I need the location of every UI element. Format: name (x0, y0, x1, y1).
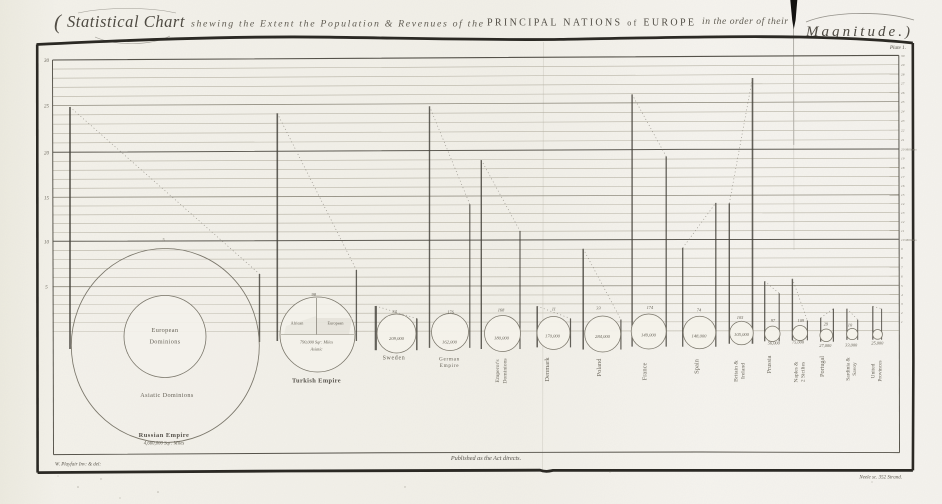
svg-text:Statistical Chart: Statistical Chart (67, 12, 185, 31)
svg-text:Prussia: Prussia (766, 355, 773, 373)
svg-text:3: 3 (901, 302, 903, 306)
svg-text:Sardinia &: Sardinia & (845, 356, 851, 380)
svg-text:21: 21 (901, 138, 905, 142)
svg-text:shewing the Extent the Populat: shewing the Extent the Population & Reve… (191, 19, 484, 30)
svg-text:26: 26 (901, 91, 905, 95)
svg-text:23: 23 (901, 119, 905, 123)
svg-text:168: 168 (498, 308, 505, 313)
svg-text:Savoy: Savoy (852, 362, 858, 376)
svg-text:11: 11 (901, 229, 904, 233)
svg-text:174: 174 (647, 305, 654, 310)
svg-text:15: 15 (901, 193, 905, 197)
svg-text:30: 30 (44, 59, 50, 64)
svg-text:Turkish Empire: Turkish Empire (292, 378, 341, 385)
svg-text:Russian Empire: Russian Empire (139, 432, 190, 439)
svg-text:18: 18 (901, 166, 905, 170)
svg-text:Naples &: Naples & (793, 361, 799, 383)
svg-text:8: 8 (901, 256, 903, 260)
svg-text:5: 5 (901, 284, 903, 288)
svg-text:France: France (642, 363, 649, 381)
svg-text:2 Sicilies: 2 Sicilies (800, 362, 806, 382)
svg-text:9: 9 (901, 247, 903, 251)
svg-text:Dominions: Dominions (149, 339, 180, 346)
svg-text:2: 2 (901, 311, 903, 315)
svg-text:27: 27 (901, 82, 905, 86)
svg-text:24: 24 (901, 110, 905, 114)
svg-text:22: 22 (901, 129, 905, 133)
svg-text:13: 13 (901, 211, 905, 215)
svg-text:105: 105 (737, 315, 744, 320)
svg-text:African: African (291, 321, 305, 326)
svg-text:Portugal: Portugal (819, 356, 826, 377)
svg-text:10: 10 (44, 240, 50, 245)
svg-text:Published as the Act directs.: Published as the Act directs. (450, 455, 521, 462)
svg-text:25: 25 (901, 100, 905, 104)
svg-text:Dominions: Dominions (503, 358, 509, 384)
svg-text:German: German (439, 357, 460, 363)
svg-text:28: 28 (901, 72, 905, 76)
svg-text:176: 176 (447, 310, 454, 315)
svg-text:20: 20 (44, 151, 50, 156)
svg-text:in the order of their: in the order of their (702, 16, 788, 27)
svg-text:1: 1 (901, 320, 903, 324)
svg-text:PRINCIPAL NATIONS of EUROPE: PRINCIPAL NATIONS of EUROPE (487, 18, 695, 29)
svg-text:Denmark: Denmark (544, 357, 551, 382)
svg-text:12: 12 (901, 220, 905, 224)
svg-text:Neele sc. 352 Strand.: Neele sc. 352 Strand. (858, 476, 902, 481)
svg-text:98: 98 (312, 292, 317, 297)
svg-text:16: 16 (901, 184, 905, 188)
svg-text:4,660,000 Sqr: Miles: 4,660,000 Sqr: Miles (144, 442, 185, 447)
svg-text:Empire: Empire (440, 363, 459, 369)
svg-text:Asiatic Dominions: Asiatic Dominions (140, 392, 194, 399)
svg-text:4: 4 (901, 293, 903, 297)
svg-text:Plate 1.: Plate 1. (889, 45, 906, 51)
svg-text:European: European (152, 327, 179, 334)
svg-text:Sweden: Sweden (383, 356, 406, 362)
svg-text:10 Millions: 10 Millions (901, 238, 917, 242)
svg-text:Asiatic: Asiatic (310, 347, 323, 352)
svg-text:20 Millions: 20 Millions (901, 148, 917, 152)
svg-text:15: 15 (44, 196, 50, 201)
svg-text:109: 109 (798, 318, 805, 323)
svg-text:17: 17 (901, 175, 905, 179)
svg-text:19: 19 (901, 157, 905, 161)
svg-text:Provinces: Provinces (878, 360, 884, 381)
svg-text:W. Playfair Inv: & del:: W. Playfair Inv: & del: (55, 463, 101, 468)
svg-text:Britain &: Britain & (734, 360, 740, 382)
svg-text:Poland: Poland (596, 358, 603, 377)
svg-text:30: 30 (901, 54, 905, 58)
svg-text:25: 25 (44, 105, 50, 110)
svg-text:Spain: Spain (694, 358, 701, 374)
svg-text:United: United (871, 363, 877, 378)
svg-text:Ireland: Ireland (741, 363, 747, 379)
svg-text:Emperor's: Emperor's (495, 359, 501, 383)
svg-text:6: 6 (901, 275, 903, 279)
svg-text:European: European (327, 321, 344, 326)
svg-text:29: 29 (901, 63, 905, 67)
svg-text:11: 11 (552, 307, 556, 312)
svg-text:7: 7 (901, 265, 903, 269)
svg-text:14: 14 (901, 202, 905, 206)
